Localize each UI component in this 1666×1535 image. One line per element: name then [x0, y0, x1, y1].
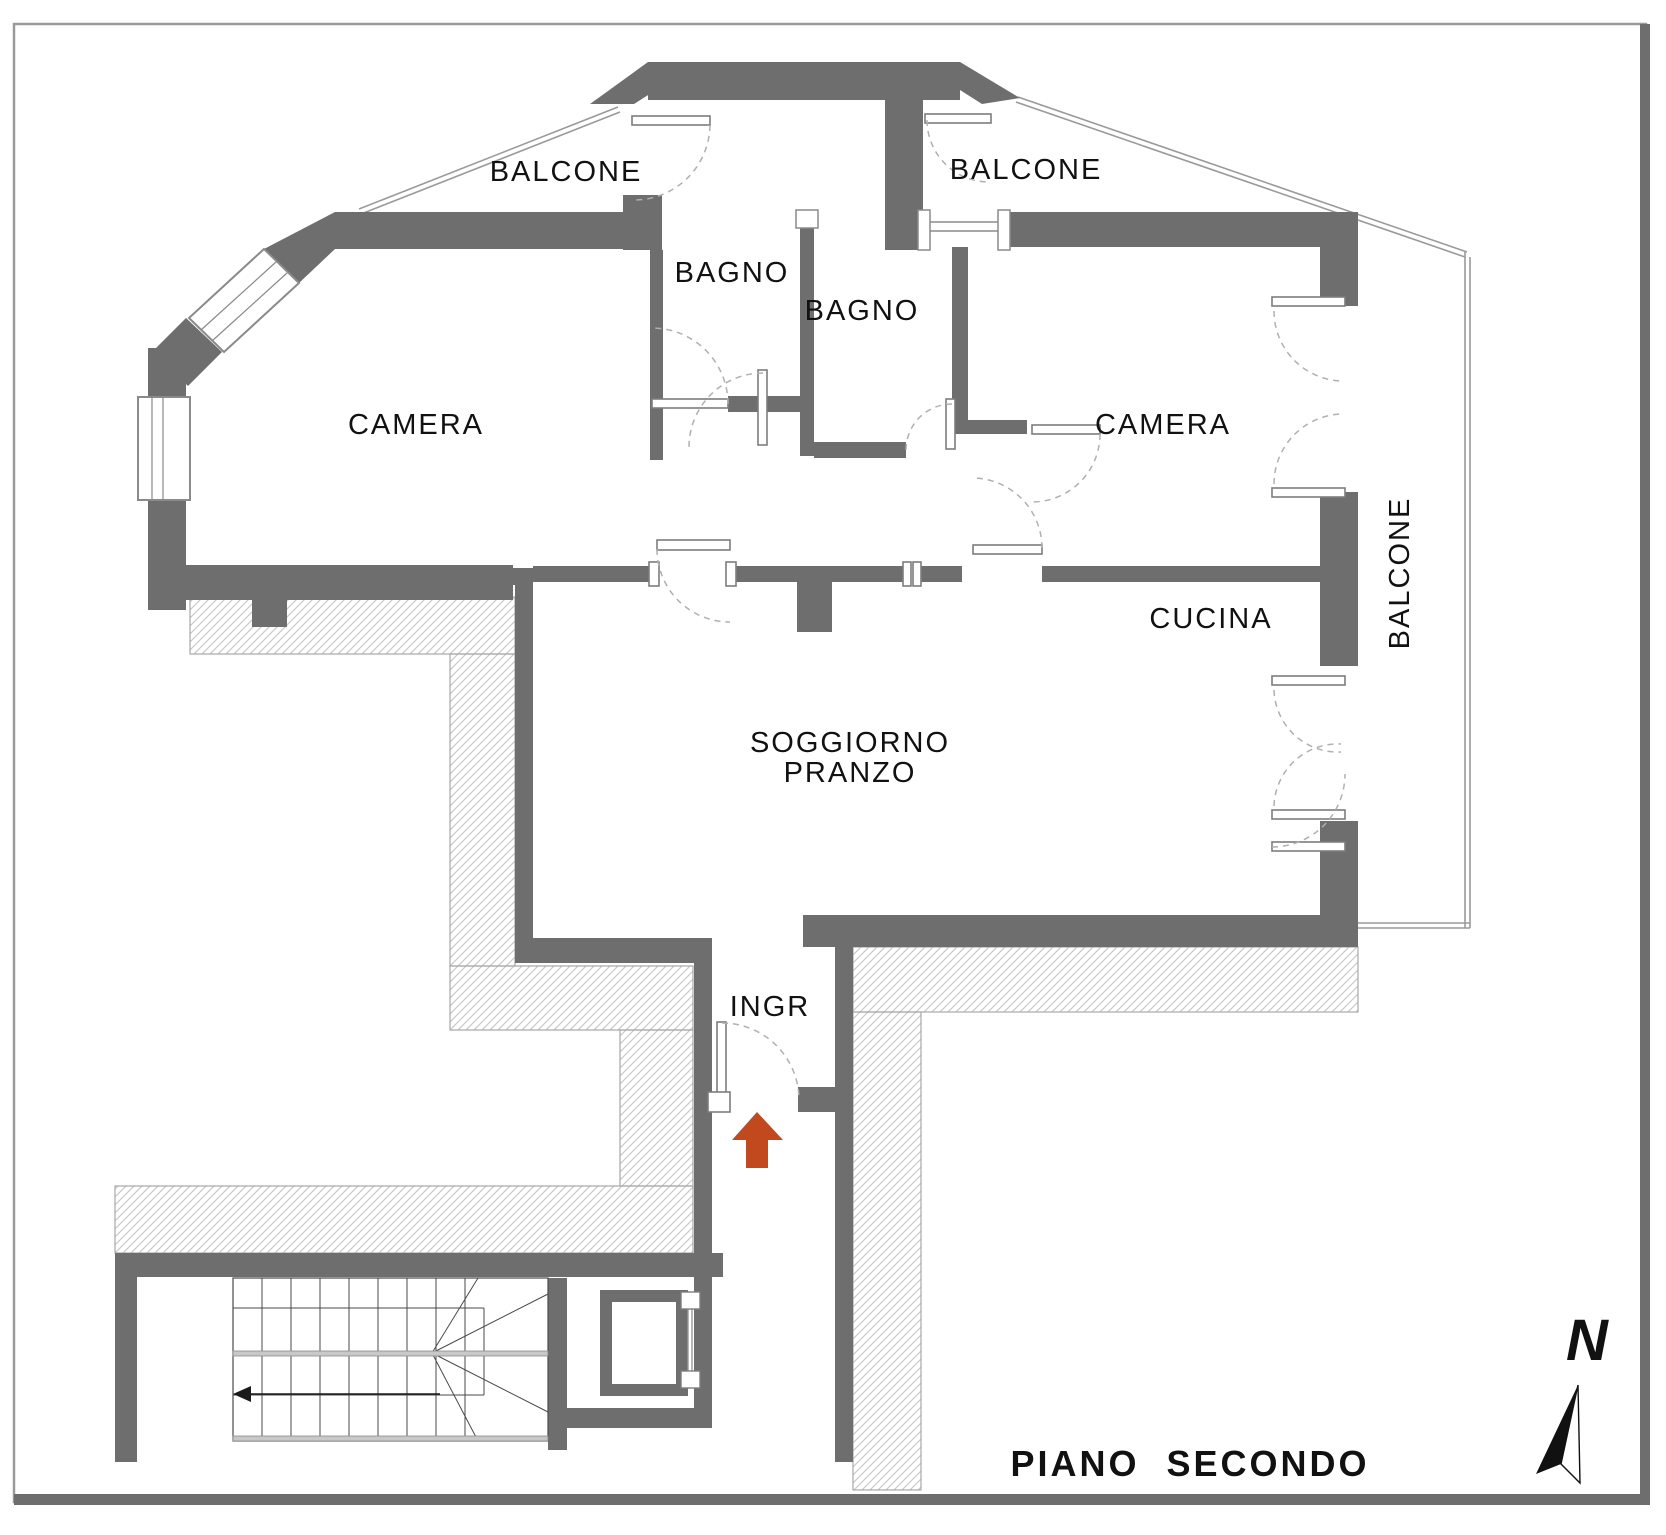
elevator-door-lines [688, 1309, 692, 1371]
door-leaf-bagno-left [652, 399, 728, 408]
hatch-band-above-stairs-vertical [620, 1030, 693, 1186]
arc-east-u2 [1274, 414, 1341, 484]
wall-camera-right-west [952, 247, 968, 422]
stair-treads [233, 1278, 548, 1441]
label-ingresso: INGR [730, 991, 811, 1023]
stair-bottom-line [233, 1436, 548, 1441]
wall-entry-stub [798, 1087, 835, 1112]
label-balcone-right-side: BALCONE [1384, 497, 1416, 650]
railing-right-vertical [1465, 252, 1470, 928]
arc-balcone-left [634, 125, 710, 200]
door-leaf-corridor [758, 370, 767, 445]
wall-soggiorno-west-corner [515, 938, 712, 963]
window-jamb-b [998, 210, 1010, 250]
door-leaf-entrance [717, 1022, 726, 1098]
railing-right-bottom [1358, 923, 1470, 928]
wall-stairwell-east [548, 1278, 567, 1450]
door-leaf-camera-right [1032, 425, 1100, 434]
arc-camera-right [1032, 434, 1100, 502]
hatch-band-under-camera [190, 597, 515, 654]
wall-bagno-right-south [814, 442, 906, 458]
label-cucina: CUCINA [1149, 603, 1272, 635]
door-leaf-east-l1 [1272, 676, 1345, 685]
wall-entry-east [835, 945, 853, 1462]
wall-below-elevator [567, 1408, 712, 1428]
entrance-arrow [732, 1112, 783, 1168]
door-leaf-east-u2 [1272, 488, 1345, 497]
wall-stairwell-north [115, 1253, 723, 1277]
stair-winder-lines [432, 1278, 548, 1441]
staircase [233, 1278, 548, 1441]
wall-central-a [533, 566, 657, 582]
wall-bagno-left-west [650, 250, 663, 460]
wall-top [648, 62, 960, 100]
wall-camera-right-north [1008, 212, 1320, 247]
wall-east-a [1320, 212, 1358, 306]
arc-bagno-right [906, 404, 952, 450]
door-leaf-balcone-right [925, 114, 991, 123]
wall-balcone-left-jog [623, 195, 662, 250]
arc-east-l2 [1274, 744, 1341, 806]
wall-camera-left-south [148, 565, 513, 600]
wall-entry-west [694, 963, 712, 1428]
wall-balcone-left-south [335, 212, 623, 249]
wall-central-b [730, 566, 907, 582]
wall-block-small [252, 600, 287, 627]
hatch-band-mid [450, 966, 693, 1030]
wall-jog-soggiorno [797, 582, 832, 632]
wall-soggiorno-south [803, 915, 1358, 947]
label-bagno-right: BAGNO [805, 295, 920, 327]
wall-west-upper [148, 348, 186, 397]
door-leaf-balcone-left [632, 116, 710, 125]
door-leaf-bagno-right [946, 399, 955, 449]
arc-bagno-left [652, 328, 728, 404]
window-bagno-right [928, 222, 1000, 231]
wall-stairwell-west [115, 1277, 137, 1462]
label-balcone-top-right: BALCONE [950, 154, 1103, 186]
wall-east-b [1320, 492, 1358, 666]
label-soggiorno-line1: SOGGIORNO [750, 727, 950, 759]
north-compass: N [1536, 1308, 1609, 1483]
door-leaf-soggiorno [657, 540, 730, 550]
window-jamb-a [918, 210, 930, 250]
floor-plan-drawing: N BALCONE BALCONE BAGNO BAGNO CAMERA CAM… [0, 0, 1666, 1535]
arc-entrance [722, 1023, 799, 1100]
wall-camera-left-south-thin [513, 568, 533, 585]
door-jamb-soggiorno-a [649, 562, 659, 586]
north-label: N [1566, 1308, 1609, 1373]
door-jamb-entrance [708, 1092, 730, 1112]
hatch-band-right-column [853, 1012, 921, 1490]
door-leaf-east-l2 [1272, 810, 1345, 819]
arc-cucina [973, 478, 1042, 548]
wall-central-c [917, 566, 962, 582]
arc-soggiorno [657, 549, 730, 622]
elevator-cab [612, 1302, 676, 1384]
wall-soggiorno-west [515, 585, 533, 938]
door-leaf-southeast [1272, 842, 1345, 851]
window-west [138, 397, 190, 500]
elevator-door-jamb-top [681, 1292, 700, 1309]
floor-plan-page: N BALCONE BALCONE BAGNO BAGNO CAMERA CAM… [0, 0, 1666, 1535]
hatch-band-vertical-left [450, 654, 515, 966]
label-balcone-top-left: BALCONE [490, 156, 643, 188]
wall-camera-right-stub [952, 420, 1027, 434]
door-leaf-cucina [973, 545, 1042, 554]
door-jamb-hall-b [913, 562, 921, 586]
elevator-door-jamb-bottom [681, 1371, 700, 1388]
arc-east-u1 [1274, 311, 1341, 381]
door-leaf-east-u1 [1272, 297, 1345, 306]
door-jamb-soggiorno-b [726, 562, 736, 586]
label-soggiorno-line2: PRANZO [784, 757, 917, 789]
stair-direction-arrow [233, 1386, 440, 1402]
window-jamb-c [796, 210, 818, 228]
label-camera-right: CAMERA [1095, 409, 1231, 441]
wall-central-d [1042, 566, 1320, 582]
hatch-band-above-stairs [115, 1186, 693, 1253]
elevator [600, 1290, 700, 1396]
label-camera-left: CAMERA [348, 409, 484, 441]
label-floor-title: PIANO SECONDO [1010, 1443, 1369, 1484]
stair-landing-line [233, 1351, 548, 1356]
door-jamb-hall-a [903, 562, 911, 586]
arc-east-l1 [1274, 690, 1341, 752]
label-bagno-left: BAGNO [675, 257, 790, 289]
hatch-band-south [853, 947, 1358, 1012]
wall-bagni-divider [800, 225, 814, 456]
